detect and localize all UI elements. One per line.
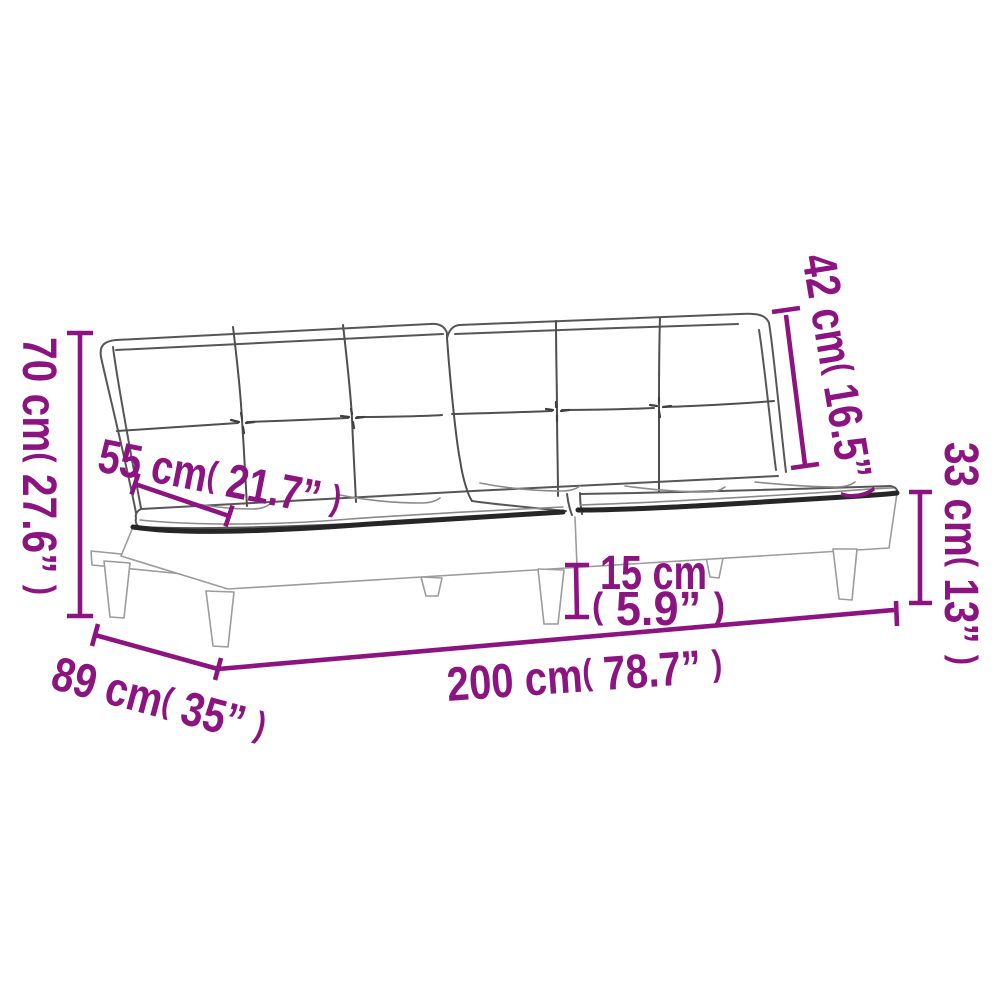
svg-text:33 cm( 13” ): 33 cm( 13” ) [934, 442, 987, 665]
svg-text:89 cm( 35” ): 89 cm( 35” ) [46, 647, 271, 755]
svg-text:200 cm( 78.7” ): 200 cm( 78.7” ) [445, 640, 724, 712]
svg-text:70 cm( 27.6” ): 70 cm( 27.6” ) [12, 337, 65, 595]
